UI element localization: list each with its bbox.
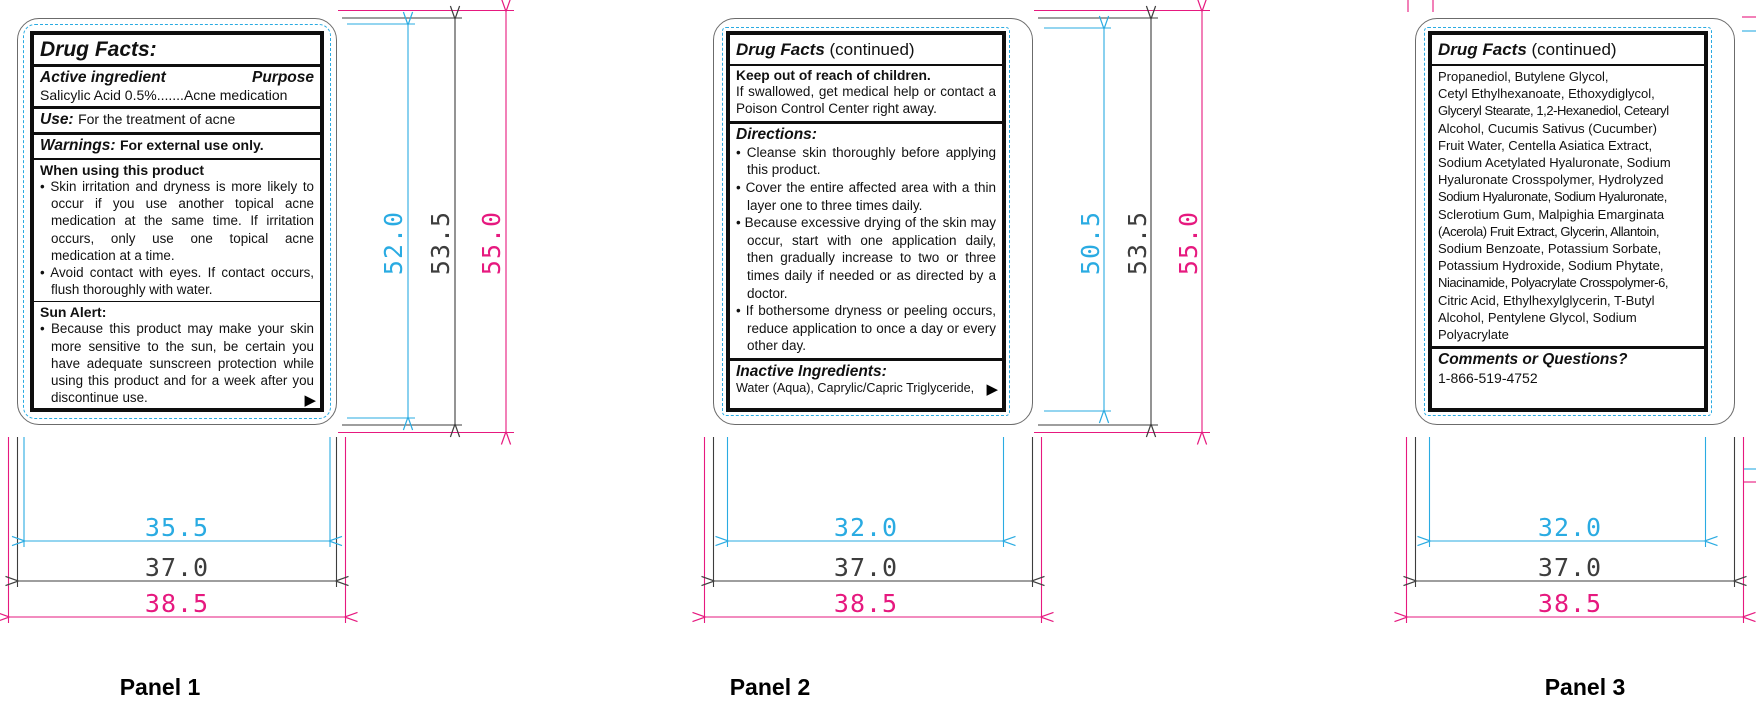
panel-1-safe-width-dim: 35.5 (129, 514, 225, 540)
bullet-icon: • (40, 321, 45, 336)
ingredient-line: Glyceryl Stearate, 1,2-Hexanediol, Cetea… (1438, 102, 1698, 119)
directions-bullet: • Cover the entire affected area with a … (736, 179, 996, 214)
panel-3-drug-facts-label: Drug Facts (continued) Propanediol, Buty… (1428, 31, 1708, 412)
bullet-icon: • (40, 265, 45, 280)
panel-2-drug-facts-label: Drug Facts (continued) Keep out of reach… (726, 31, 1006, 412)
drug-facts-continued-title: Drug Facts (continued) (730, 35, 1002, 66)
continue-arrow-icon: ▶ (986, 382, 998, 397)
sun-alert-bullet: • Because this product may make your ski… (40, 320, 314, 406)
panel-2-caption: Panel 2 (690, 674, 850, 701)
panel-2-die-width-dim: 37.0 (818, 554, 914, 580)
keep-out-header: Keep out of reach of children. (736, 68, 996, 83)
warnings-label: Warnings: (40, 137, 116, 154)
sun-alert-section: Sun Alert: • Because this product may ma… (34, 302, 320, 409)
ingredient-line: Hyaluronate Crosspolymer, Hydrolyzed (1438, 171, 1698, 188)
inactive-ingredients-text: Water (Aqua), Caprylic/Capric Triglyceri… (736, 381, 996, 395)
ingredient-line: Niacinamide, Polyacrylate Crosspolymer-6… (1438, 274, 1698, 291)
comments-header: Comments or Questions? (1438, 351, 1698, 369)
ingredient-line: Fruit Water, Centella Asiatica Extract, (1438, 137, 1698, 154)
bullet-icon: • (736, 215, 741, 230)
ingredient-line: Sclerotium Gum, Malpighia Emarginata (1438, 206, 1698, 223)
panel-1-die-width-dim: 37.0 (129, 554, 225, 580)
panel-2-bleed-height-dim: 55.0 (1175, 195, 1201, 291)
panel-2-bleed-width-dim: 38.5 (818, 590, 914, 616)
when-using-bullet: • Skin irritation and dryness is more li… (40, 178, 314, 264)
when-using-bullet: • Avoid contact with eyes. If contact oc… (40, 264, 314, 298)
active-ingredient-header: Active ingredient (40, 69, 166, 87)
when-using-header: When using this product (40, 162, 314, 178)
keep-out-text: If swallowed, get medical help or contac… (736, 83, 996, 118)
drug-facts-continued-title: Drug Facts (continued) (1432, 35, 1704, 66)
when-using-section: When using this product • Skin irritatio… (34, 160, 320, 302)
comments-section: Comments or Questions? 1-866-519-4752 (1432, 349, 1704, 389)
active-ingredient-line: Salicylic Acid 0.5%.......Acne medicatio… (40, 87, 314, 103)
ingredient-line: Polyacrylate (1438, 326, 1698, 343)
panel-1-bleed-height-dim: 55.0 (478, 195, 504, 291)
directions-bullet: • Cleanse skin thoroughly before applyin… (736, 144, 996, 179)
panel-3-caption: Panel 3 (1505, 674, 1665, 701)
directions-bullet: • If bothersome dryness or peeling occur… (736, 302, 996, 355)
panel-3-bleed-width-dim: 38.5 (1522, 590, 1618, 616)
keep-out-section: Keep out of reach of children. If swallo… (730, 66, 1002, 124)
ingredient-line: Propanediol, Butylene Glycol, (1438, 68, 1698, 85)
ingredient-line: Alcohol, Pentylene Glycol, Sodium (1438, 309, 1698, 326)
ingredient-line: Cetyl Ethylhexanoate, Ethoxydiglycol, (1438, 85, 1698, 102)
active-ingredient-section: Active ingredient Purpose Salicylic Acid… (34, 67, 320, 109)
ingredient-line: (Acerola) Fruit Extract, Glycerin, Allan… (1438, 223, 1698, 240)
ingredients-section: Propanediol, Butylene Glycol, Cetyl Ethy… (1432, 66, 1704, 349)
sun-alert-header: Sun Alert: (40, 304, 314, 320)
panel-2-safe-height-dim: 50.5 (1077, 195, 1103, 291)
panel-1-caption: Panel 1 (80, 674, 240, 701)
panel-2-safe-width-dim: 32.0 (818, 514, 914, 540)
warnings-text: For external use only. (120, 137, 264, 153)
ingredient-line: Alcohol, Cucumis Sativus (Cucumber) (1438, 120, 1698, 137)
continue-arrow-icon: ▶ (304, 393, 316, 408)
panel-2-die-height-dim: 53.5 (1124, 195, 1150, 291)
bullet-icon: • (736, 145, 741, 160)
panel-1-bleed-width-dim: 38.5 (129, 590, 225, 616)
panel-1-drug-facts-label: Drug Facts: Active ingredient Purpose Sa… (30, 31, 324, 412)
directions-header: Directions: (736, 126, 996, 144)
ingredient-line: Sodium Benzoate, Potassium Sorbate, (1438, 240, 1698, 257)
drug-facts-title: Drug Facts: (34, 35, 320, 67)
use-section: Use: For the treatment of acne (34, 109, 320, 135)
ingredient-line: Potassium Hydroxide, Sodium Phytate, (1438, 257, 1698, 274)
ingredient-line: Sodium Hyaluronate, Sodium Hyaluronate, (1438, 188, 1698, 205)
panel-3-die-width-dim: 37.0 (1522, 554, 1618, 580)
panel-1-die-height-dim: 53.5 (427, 195, 453, 291)
bullet-icon: • (40, 179, 45, 194)
purpose-header: Purpose (252, 69, 314, 87)
use-label: Use: (40, 111, 74, 128)
ingredient-line: Citric Acid, Ethylhexylglycerin, T-Butyl (1438, 292, 1698, 309)
bullet-icon: • (736, 303, 741, 318)
bullet-icon: • (736, 180, 741, 195)
inactive-ingredients-section: Inactive Ingredients: Water (Aqua), Capr… (730, 361, 1002, 398)
directions-section: Directions: • Cleanse skin thoroughly be… (730, 124, 1002, 361)
inactive-ingredients-header: Inactive Ingredients: (736, 363, 996, 381)
panel-1-safe-height-dim: 52.0 (380, 195, 406, 291)
comments-phone: 1-866-519-4752 (1438, 369, 1698, 386)
warnings-section: Warnings: For external use only. (34, 135, 320, 160)
directions-bullet: • Because excessive drying of the skin m… (736, 214, 996, 302)
ingredient-line: Sodium Acetylated Hyaluronate, Sodium (1438, 154, 1698, 171)
label-spec-drawing: Drug Facts: Active ingredient Purpose Sa… (0, 0, 1756, 720)
panel-3-safe-width-dim: 32.0 (1522, 514, 1618, 540)
use-text: For the treatment of acne (78, 111, 235, 127)
